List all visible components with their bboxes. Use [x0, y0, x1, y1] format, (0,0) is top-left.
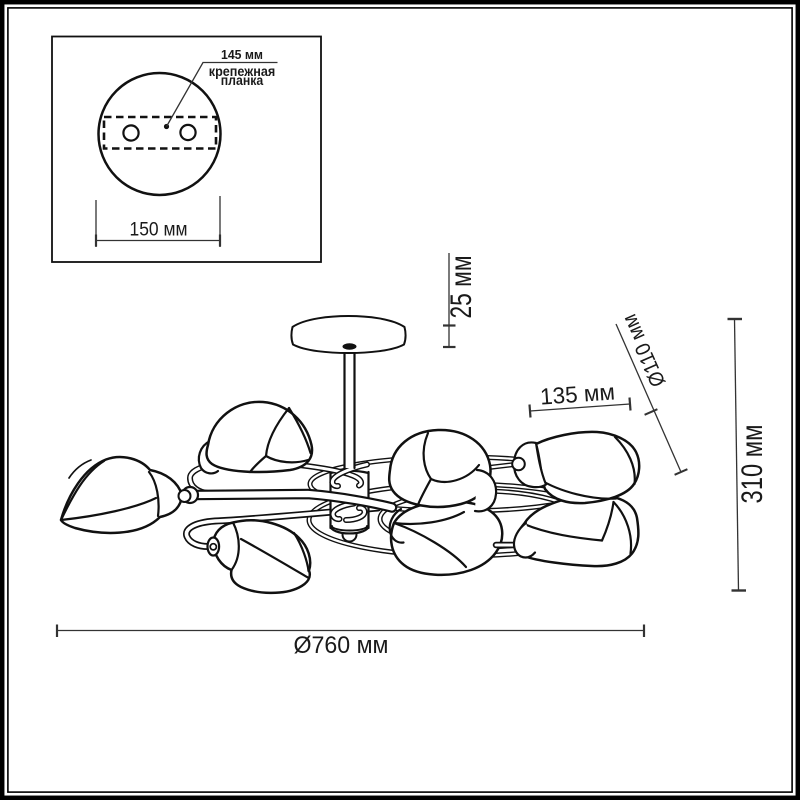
- svg-text:25 мм: 25 мм: [445, 256, 478, 319]
- svg-text:Ø110 мм: Ø110 мм: [618, 311, 670, 391]
- svg-text:планка: планка: [221, 73, 264, 88]
- svg-text:135 мм: 135 мм: [539, 378, 616, 409]
- svg-text:Ø760 мм: Ø760 мм: [294, 632, 389, 659]
- svg-text:145 мм: 145 мм: [221, 47, 263, 62]
- svg-text:310 мм: 310 мм: [736, 425, 769, 504]
- svg-text:150 мм: 150 мм: [130, 220, 188, 241]
